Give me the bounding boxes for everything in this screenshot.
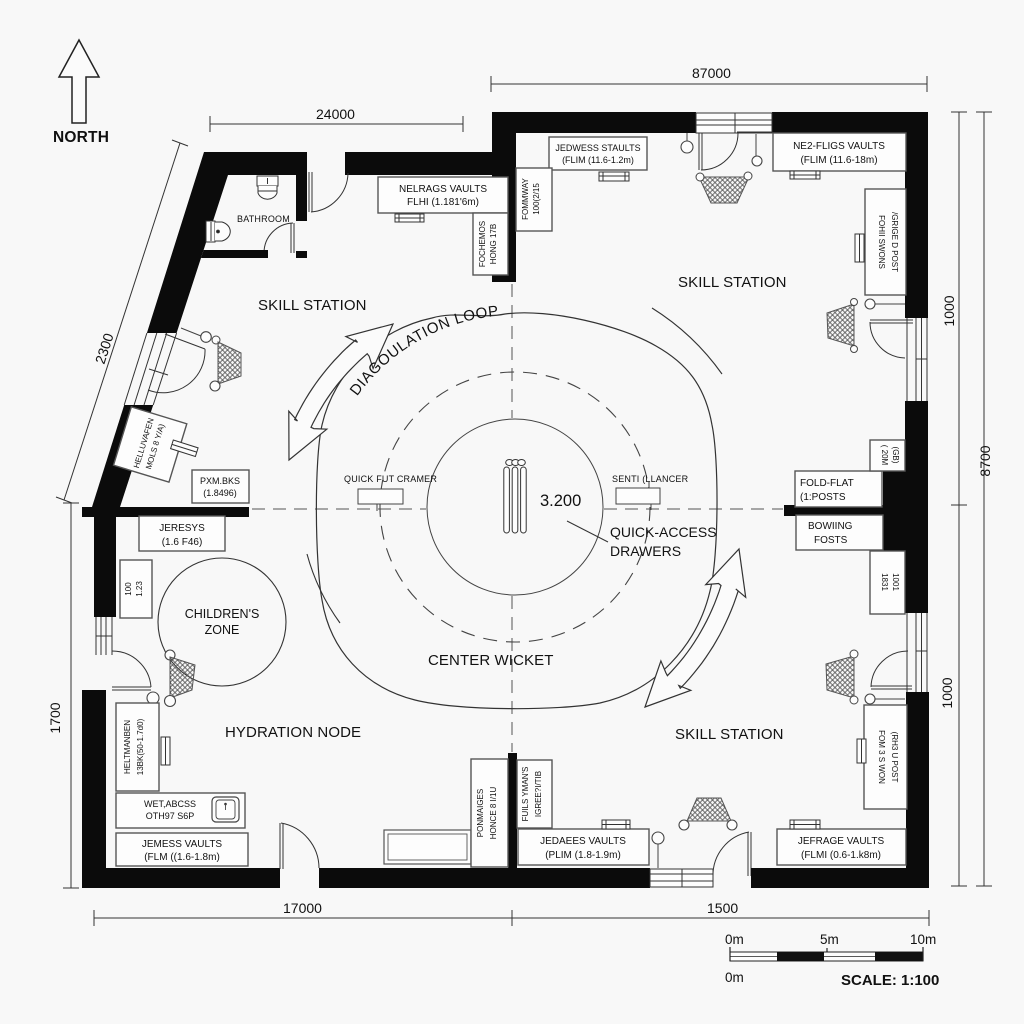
svg-text:(1:POSTS: (1:POSTS bbox=[800, 492, 846, 503]
svg-text:DRAWERS: DRAWERS bbox=[610, 543, 681, 559]
svg-text:QUICK-ACCESS: QUICK-ACCESS bbox=[610, 524, 717, 540]
svg-text:SKILL STATION: SKILL STATION bbox=[678, 274, 787, 291]
svg-text:HYDRATION NODE: HYDRATION NODE bbox=[225, 724, 361, 741]
svg-text:10m: 10m bbox=[910, 932, 936, 947]
svg-text:BOWIING: BOWIING bbox=[808, 521, 853, 532]
svg-text:1700: 1700 bbox=[47, 702, 63, 733]
svg-text:100: 100 bbox=[124, 582, 133, 596]
svg-text:(PLIM (1.8-1.9m): (PLIM (1.8-1.9m) bbox=[545, 850, 621, 861]
svg-text:FOSTS: FOSTS bbox=[814, 535, 848, 546]
svg-text:(RH3 U POST: (RH3 U POST bbox=[890, 732, 899, 783]
svg-text:(FLIM (11.6-1.2m): (FLIM (11.6-1.2m) bbox=[562, 155, 634, 165]
svg-text:(1.8496): (1.8496) bbox=[203, 488, 237, 498]
svg-text:FOMMWAY: FOMMWAY bbox=[521, 177, 530, 219]
svg-text:ZONE: ZONE bbox=[205, 623, 240, 637]
svg-text:1000: 1000 bbox=[941, 295, 957, 326]
svg-text:FOCHEMOS: FOCHEMOS bbox=[478, 221, 487, 267]
svg-text:1831: 1831 bbox=[880, 573, 889, 591]
svg-text:17000: 17000 bbox=[283, 900, 322, 916]
svg-text:(1.6 F46): (1.6 F46) bbox=[162, 537, 203, 548]
svg-text:(FLMI (0.6-1.k8m): (FLMI (0.6-1.k8m) bbox=[801, 850, 881, 861]
svg-text:FLHI (1.181'6m): FLHI (1.181'6m) bbox=[407, 197, 479, 208]
svg-text:JEMESS VAULTS: JEMESS VAULTS bbox=[142, 839, 223, 850]
svg-text:HELTMANBEN: HELTMANBEN bbox=[123, 720, 132, 774]
svg-text:NELRAGS VAULTS: NELRAGS VAULTS bbox=[399, 184, 487, 195]
svg-text:HONCE 8 I/1U: HONCE 8 I/1U bbox=[489, 787, 498, 840]
svg-text:(FLM ((1.6-1.8m): (FLM ((1.6-1.8m) bbox=[144, 852, 220, 863]
svg-text:HONG 17B: HONG 17B bbox=[489, 224, 498, 264]
svg-text:100(2/15: 100(2/15 bbox=[532, 183, 541, 215]
svg-text:OTH97 S6P: OTH97 S6P bbox=[146, 811, 195, 821]
svg-text:0m: 0m bbox=[725, 932, 744, 947]
svg-text:SENTI (LLANCER: SENTI (LLANCER bbox=[612, 474, 689, 484]
svg-text:FOHII SWONS: FOHII SWONS bbox=[877, 215, 886, 269]
svg-text:PONMAIGES: PONMAIGES bbox=[476, 789, 485, 837]
svg-text:PXM.BKS: PXM.BKS bbox=[200, 476, 240, 486]
svg-text:0m: 0m bbox=[725, 970, 744, 985]
svg-text:(GB): (GB) bbox=[891, 447, 900, 464]
svg-text:JEDWESS STAULTS: JEDWESS STAULTS bbox=[555, 143, 640, 153]
svg-text:/GRIGE D POST: /GRIGE D POST bbox=[890, 212, 899, 272]
svg-text:24000: 24000 bbox=[316, 106, 355, 122]
svg-text:FUILS YMAN'S: FUILS YMAN'S bbox=[521, 767, 530, 822]
svg-text:8700: 8700 bbox=[977, 445, 993, 476]
svg-text:1001: 1001 bbox=[891, 573, 900, 591]
svg-text:FOLD-FLAT: FOLD-FLAT bbox=[800, 478, 854, 489]
svg-text:CENTER WICKET: CENTER WICKET bbox=[428, 652, 553, 669]
svg-text:SKILL STATION: SKILL STATION bbox=[675, 726, 784, 743]
svg-text:13BK(50-1.7d0): 13BK(50-1.7d0) bbox=[136, 718, 145, 775]
svg-text:( 20M: ( 20M bbox=[880, 445, 889, 466]
svg-text:1000: 1000 bbox=[939, 677, 955, 708]
svg-text:IGREE?I/TIB: IGREE?I/TIB bbox=[534, 771, 543, 817]
svg-text:JEDAEES VAULTS: JEDAEES VAULTS bbox=[540, 836, 626, 847]
svg-text:NE2-FLIGS VAULTS: NE2-FLIGS VAULTS bbox=[793, 141, 885, 152]
svg-text:1.23: 1.23 bbox=[135, 581, 144, 597]
svg-text:(FLIM (11.6-18m): (FLIM (11.6-18m) bbox=[800, 155, 877, 166]
svg-text:87000: 87000 bbox=[692, 65, 731, 81]
svg-text:SCALE: 1:100: SCALE: 1:100 bbox=[841, 972, 939, 989]
svg-text:5m: 5m bbox=[820, 932, 839, 947]
svg-text:3.200: 3.200 bbox=[540, 492, 581, 510]
svg-text:NORTH: NORTH bbox=[53, 129, 109, 146]
svg-text:BATHROOM: BATHROOM bbox=[237, 214, 290, 224]
svg-text:FOM 3 S WON: FOM 3 S WON bbox=[877, 730, 886, 784]
svg-text:CHILDREN'S: CHILDREN'S bbox=[185, 607, 260, 621]
svg-text:1500: 1500 bbox=[707, 900, 738, 916]
svg-text:JERESYS: JERESYS bbox=[159, 523, 205, 534]
svg-text:QUICK FUT CRAMER: QUICK FUT CRAMER bbox=[344, 474, 437, 484]
svg-text:SKILL STATION: SKILL STATION bbox=[258, 297, 367, 314]
svg-text:WET,ABCSS: WET,ABCSS bbox=[144, 799, 196, 809]
svg-text:JEFRAGE VAULTS: JEFRAGE VAULTS bbox=[798, 836, 885, 847]
